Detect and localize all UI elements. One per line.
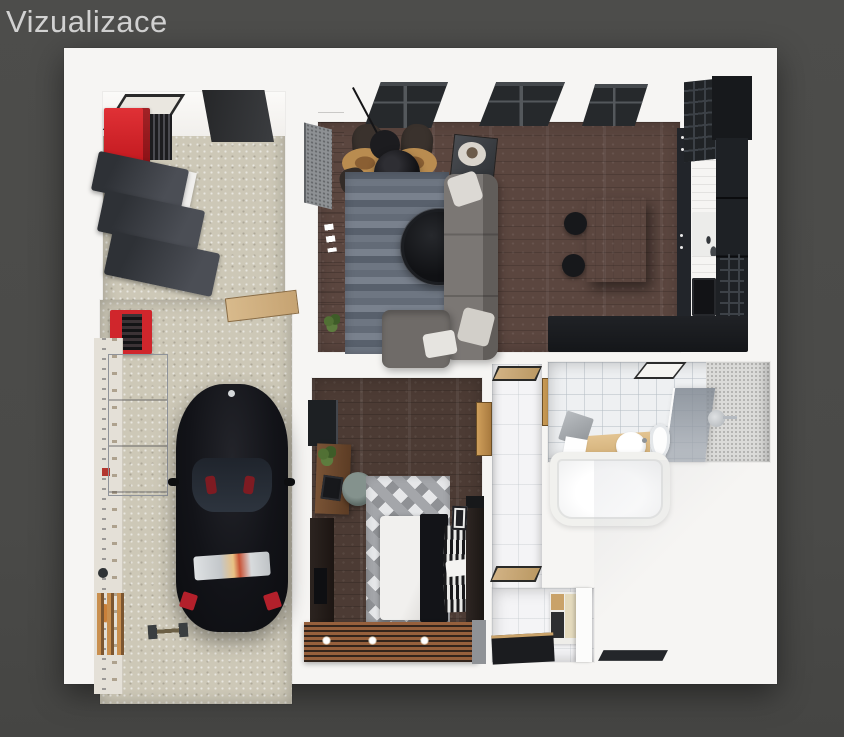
shower-arm [723, 416, 737, 419]
binder-slats [150, 114, 172, 160]
lumber-rack [97, 593, 127, 655]
hall-wall-shading [594, 460, 770, 660]
doormat-inner [492, 568, 540, 580]
tool-cabinet-grille [122, 314, 142, 350]
desk-plant [318, 446, 336, 466]
balcony-light [420, 636, 429, 645]
closet-wood-box [551, 594, 564, 610]
dresser-tv [314, 568, 327, 604]
bar-stool [564, 212, 587, 235]
bed-headboard [466, 508, 484, 624]
wood-doormat [490, 566, 542, 582]
entry-divider-panel [576, 588, 592, 662]
kitchen-sink [692, 278, 716, 316]
balcony-light [368, 636, 377, 645]
dumbbell [148, 623, 189, 640]
kitchen-island [586, 198, 646, 282]
basin-faucet [642, 438, 647, 443]
cabinet-handle-dot [680, 246, 683, 249]
laptop [320, 475, 343, 502]
window [582, 84, 648, 126]
kitchen-upper-cabinet [712, 76, 752, 140]
car-mirror-left [168, 478, 179, 486]
window [479, 82, 565, 126]
picture-frame [452, 506, 468, 531]
cabinet-handle-dot [680, 234, 683, 237]
tv-screen [304, 123, 332, 210]
visualization-canvas: { "title": "Vizualizace", "palette": { "… [0, 0, 844, 737]
nightstand [466, 496, 484, 508]
kitchen-bottom-counter [548, 316, 748, 352]
car-windshield [192, 458, 272, 512]
wood-doormat [492, 366, 542, 381]
entry-door [491, 632, 554, 664]
garage-wall-cabinet [108, 354, 168, 496]
gas-hob [692, 212, 717, 256]
potted-plant [324, 314, 340, 332]
wardrobe [308, 400, 338, 446]
cabinet-glass-grille [720, 254, 744, 324]
hanging-tool-disc [98, 568, 108, 578]
floorplan-page [64, 48, 777, 684]
page-title: Vizualizace [6, 4, 168, 40]
car-mirror-right [284, 478, 295, 486]
balcony-light [322, 636, 331, 645]
car-seat-red [243, 475, 255, 494]
bar-stool [562, 254, 585, 277]
bedroom-door-open [476, 402, 492, 456]
car-sunroof-dot [228, 390, 235, 397]
doormat-inner [494, 368, 540, 379]
car-seat-red [205, 475, 217, 494]
balcony-end-panel [472, 620, 486, 664]
